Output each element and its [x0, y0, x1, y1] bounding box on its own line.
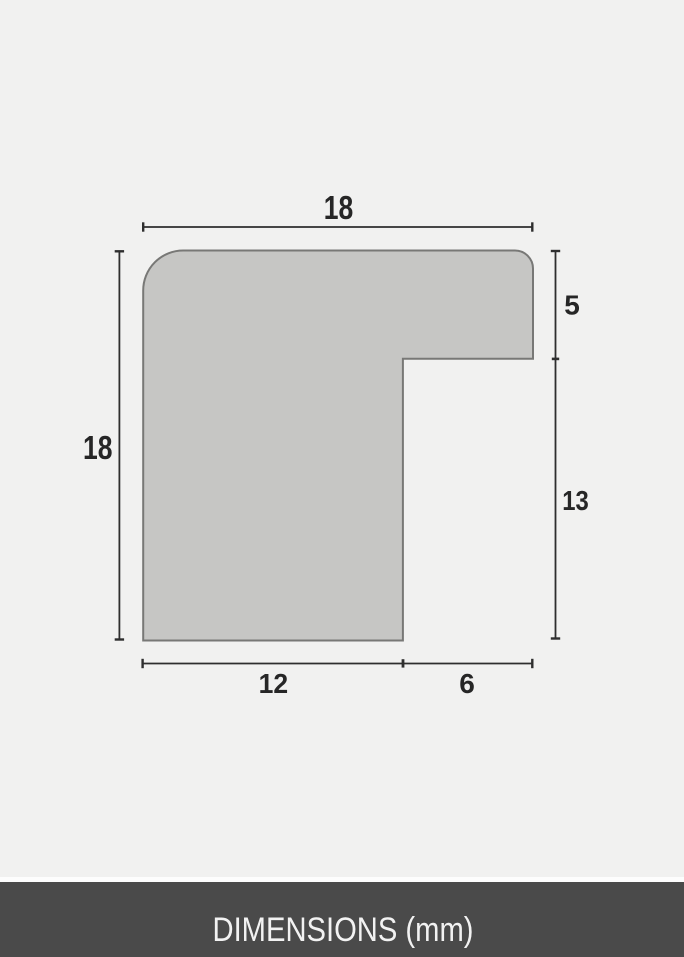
svg-text:13: 13: [562, 485, 589, 516]
svg-text:18: 18: [83, 429, 113, 466]
svg-text:6: 6: [459, 668, 475, 699]
svg-text:12: 12: [259, 668, 289, 699]
svg-text:DIMENSIONS (mm): DIMENSIONS (mm): [213, 911, 474, 949]
svg-text:18: 18: [324, 189, 354, 226]
svg-text:5: 5: [564, 290, 580, 321]
